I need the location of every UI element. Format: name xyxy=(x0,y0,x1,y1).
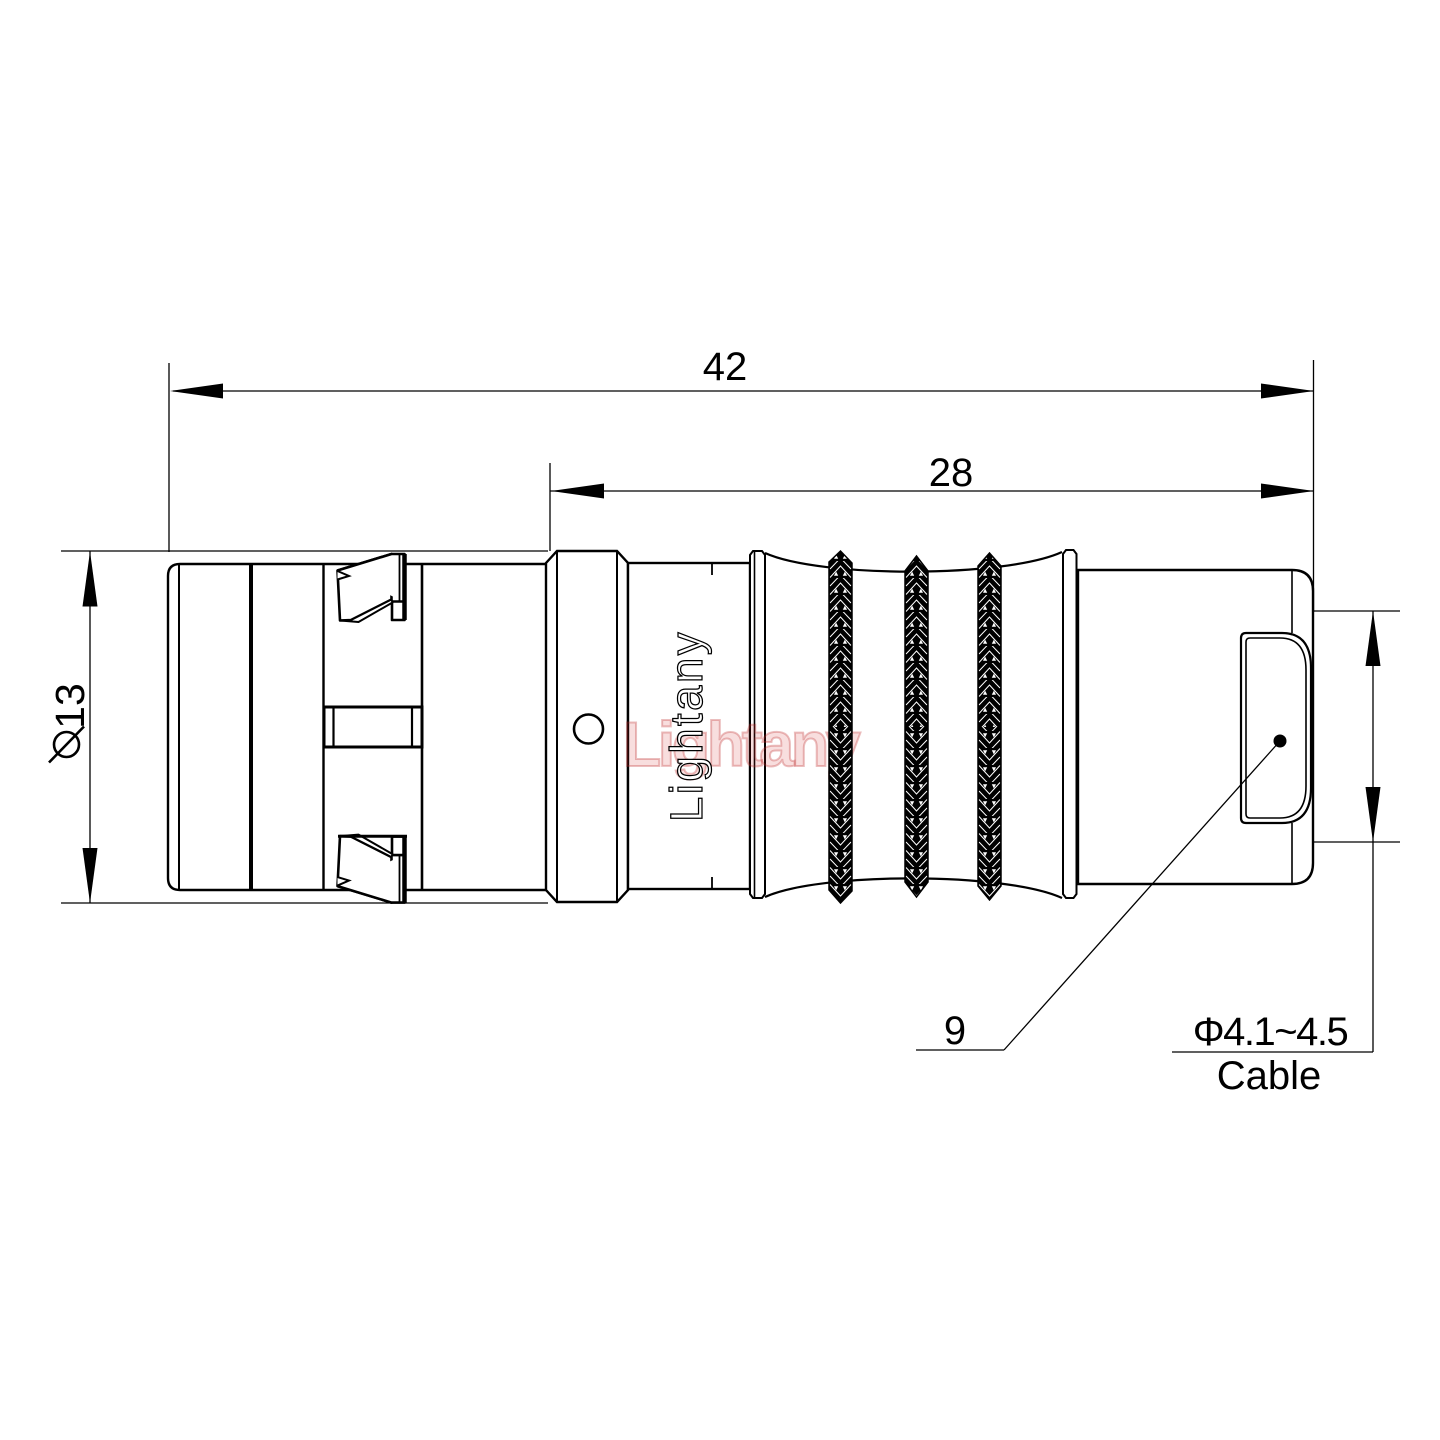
svg-text:Lightany: Lightany xyxy=(623,710,861,780)
svg-text:28: 28 xyxy=(929,451,974,495)
svg-text:Lightany: Lightany xyxy=(661,630,712,822)
svg-text:42: 42 xyxy=(703,345,748,389)
svg-text:13: 13 xyxy=(47,683,93,729)
svg-text:Φ4.1~4.5: Φ4.1~4.5 xyxy=(1193,1010,1348,1054)
svg-text:9: 9 xyxy=(944,1009,966,1053)
svg-text:Cable: Cable xyxy=(1217,1054,1322,1098)
